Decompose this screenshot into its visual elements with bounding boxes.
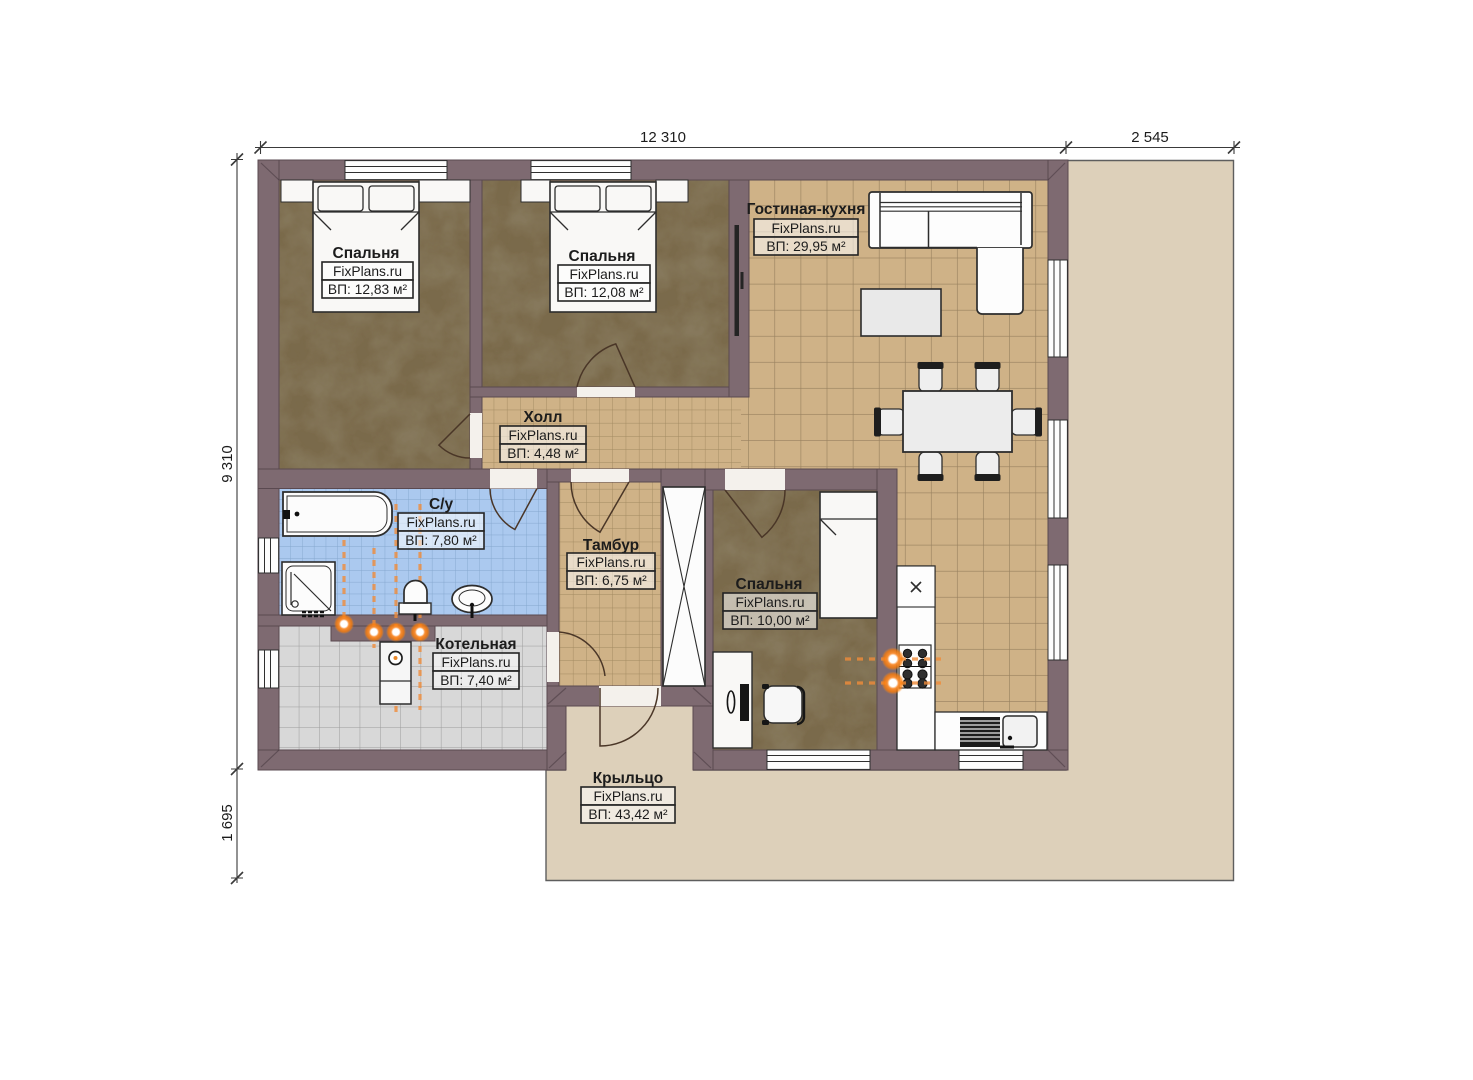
svg-text:FixPlans.ru: FixPlans.ru [569, 267, 638, 282]
svg-text:С/у: С/у [429, 496, 454, 513]
svg-text:FixPlans.ru: FixPlans.ru [771, 221, 840, 236]
svg-text:Гостиная-кухня: Гостиная-кухня [747, 201, 866, 218]
svg-text:ВП: 12,83 м²: ВП: 12,83 м² [328, 282, 408, 297]
svg-text:12 310: 12 310 [640, 129, 686, 146]
svg-text:ВП: 7,40 м²: ВП: 7,40 м² [440, 673, 512, 688]
svg-text:ВП: 12,08 м²: ВП: 12,08 м² [564, 285, 644, 300]
svg-text:ВП: 4,48 м²: ВП: 4,48 м² [507, 446, 579, 461]
svg-text:Холл: Холл [524, 409, 563, 426]
svg-text:FixPlans.ru: FixPlans.ru [735, 595, 804, 610]
svg-text:FixPlans.ru: FixPlans.ru [333, 264, 402, 279]
svg-text:ВП: 29,95 м²: ВП: 29,95 м² [766, 239, 846, 254]
svg-text:Спальня: Спальня [736, 576, 803, 593]
svg-text:ВП: 7,80 м²: ВП: 7,80 м² [405, 533, 477, 548]
svg-text:FixPlans.ru: FixPlans.ru [508, 428, 577, 443]
svg-text:FixPlans.ru: FixPlans.ru [406, 515, 475, 530]
svg-text:9 310: 9 310 [219, 445, 236, 483]
svg-text:Спальня: Спальня [569, 248, 636, 265]
svg-text:Котельная: Котельная [435, 636, 516, 653]
svg-text:FixPlans.ru: FixPlans.ru [593, 789, 662, 804]
svg-text:ВП: 6,75 м²: ВП: 6,75 м² [575, 573, 647, 588]
svg-text:ВП: 43,42 м²: ВП: 43,42 м² [588, 807, 668, 822]
svg-text:Крыльцо: Крыльцо [593, 770, 664, 787]
svg-text:Спальня: Спальня [333, 245, 400, 262]
svg-text:FixPlans.ru: FixPlans.ru [441, 655, 510, 670]
svg-text:2 545: 2 545 [1131, 129, 1169, 146]
svg-text:FixPlans.ru: FixPlans.ru [576, 555, 645, 570]
svg-text:Тамбур: Тамбур [583, 537, 639, 554]
svg-text:1 695: 1 695 [219, 804, 236, 842]
svg-text:ВП: 10,00 м²: ВП: 10,00 м² [730, 613, 810, 628]
